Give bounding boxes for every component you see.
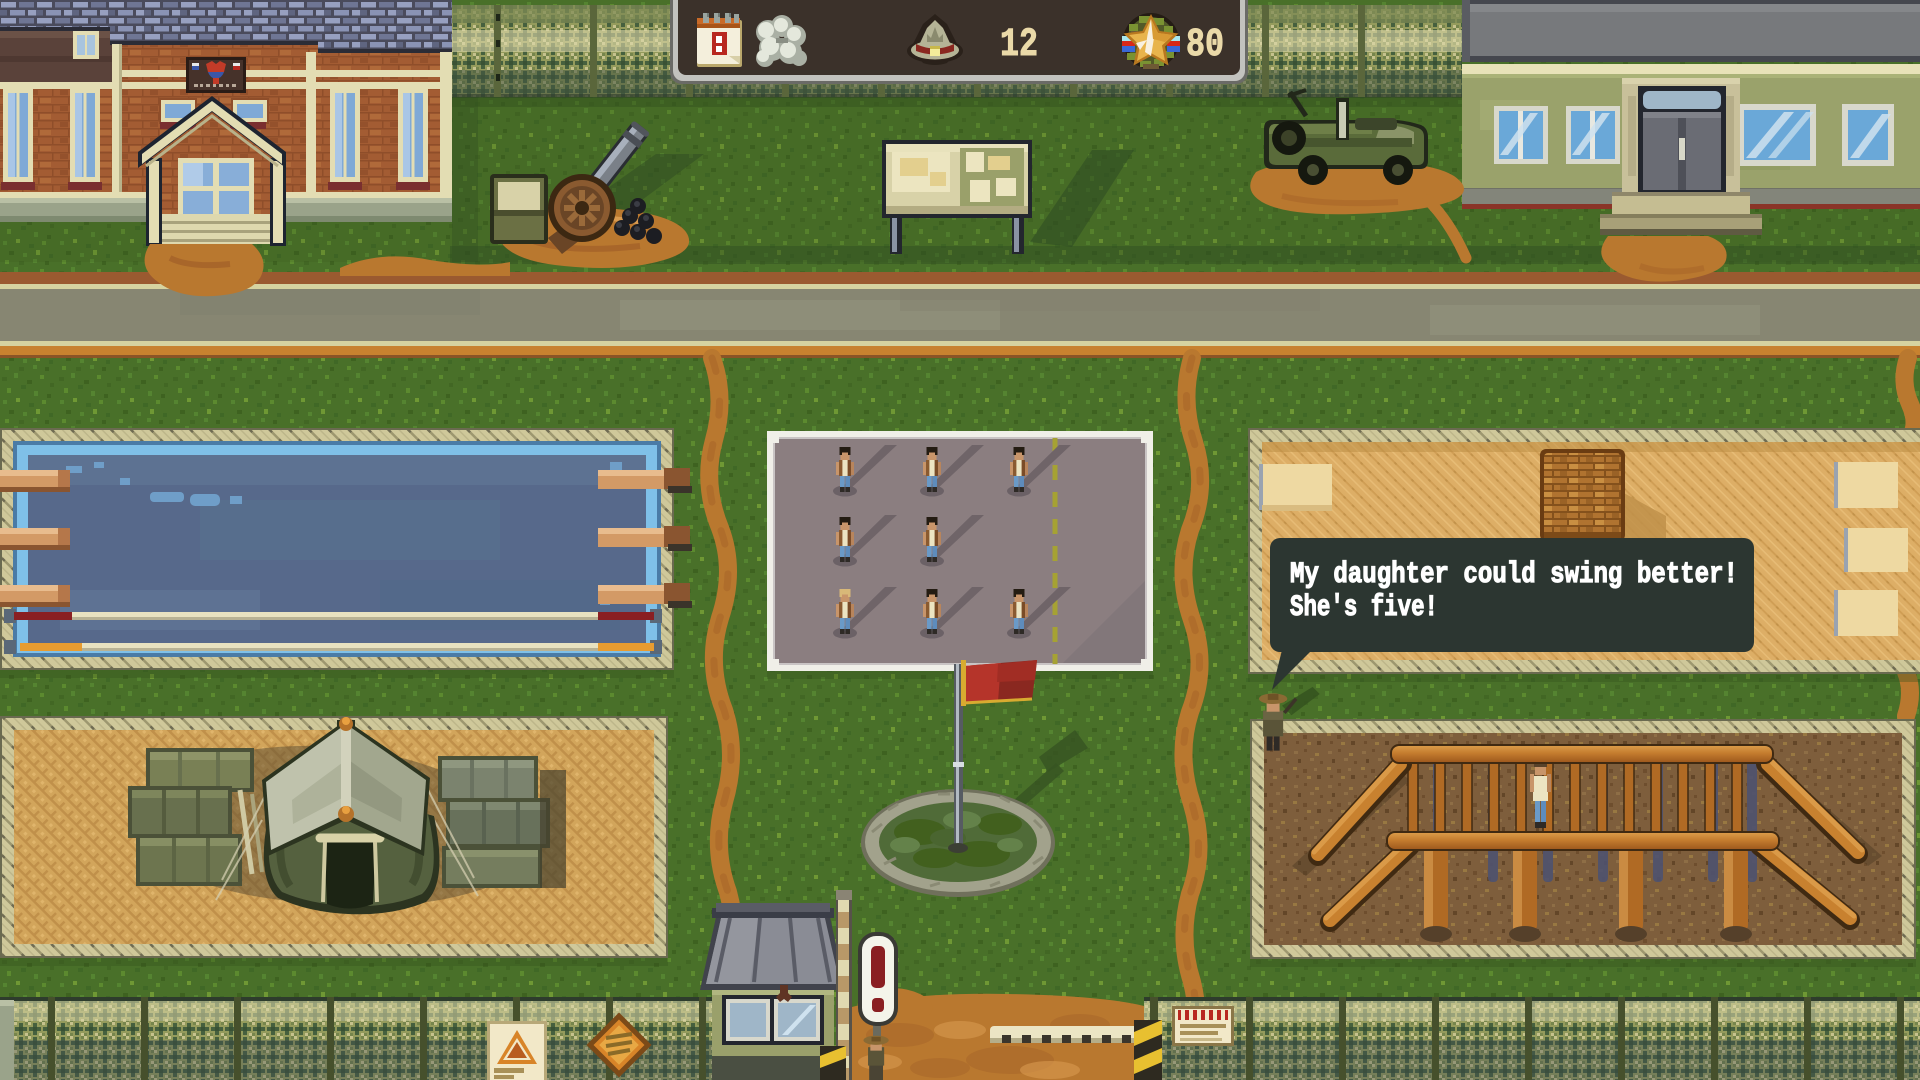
svg-text:She's five!: She's five! — [1290, 591, 1438, 625]
svg-text:12: 12 — [1000, 23, 1038, 68]
svg-text:My daughter could swing better: My daughter could swing better! — [1290, 558, 1738, 592]
svg-text:80: 80 — [1186, 23, 1224, 68]
